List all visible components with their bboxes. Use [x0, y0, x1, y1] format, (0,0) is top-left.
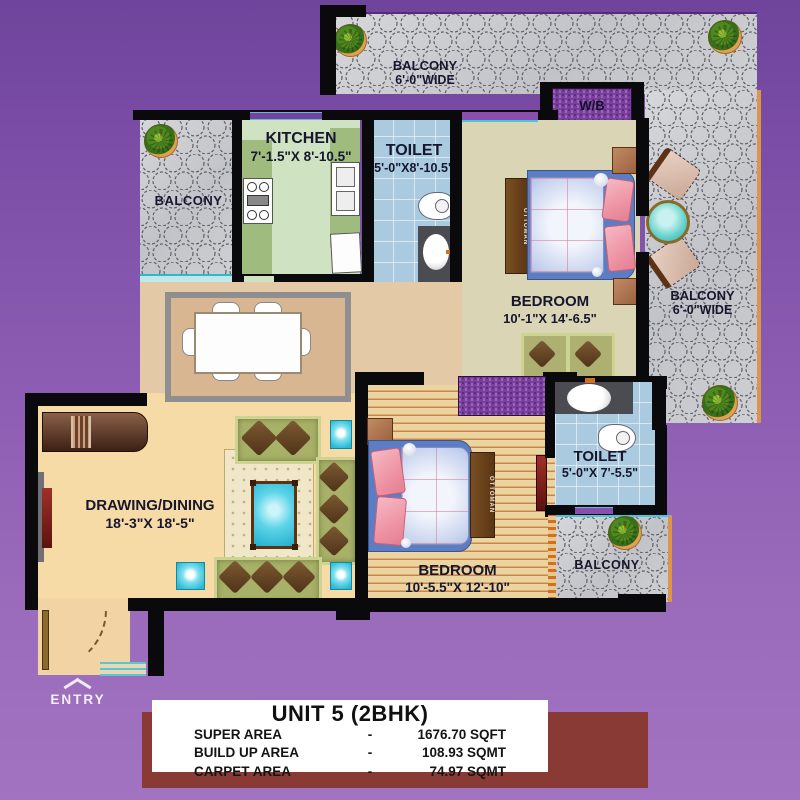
balcony-kitchen-label: BALCONY: [146, 193, 231, 208]
info-row-buildup-area: BUILD UP AREA-108.93 SQMT: [152, 744, 548, 762]
toilet2-label: TOILET 5'-0"X 7'-5.5": [552, 448, 648, 480]
kitchen-label: KITCHEN 7'-1.5"X 8'-10.5": [240, 130, 362, 165]
floor-plan: BALCONY 6'-0"WIDE BALCONY 6'-0"WIDE W/B …: [0, 0, 800, 800]
entry-label: ENTRY: [46, 692, 110, 708]
kitchen-sink: [331, 162, 360, 216]
bedroom2-balcony-window: [548, 515, 556, 600]
side-table: [330, 562, 352, 590]
toilet2-door: [536, 455, 547, 511]
sofa-three-seater-right: [316, 457, 358, 565]
plant-bottom-balcony: [608, 516, 642, 550]
side-table: [330, 420, 352, 449]
entry-arrow-icon: [62, 676, 92, 690]
plant-top-right: [708, 20, 742, 54]
dining-table: [194, 312, 302, 374]
plant-kitchen-balcony: [144, 124, 178, 158]
kitchen-fridge: [330, 232, 362, 274]
balcony-top-label: BALCONY 6'-0"WIDE: [360, 58, 490, 88]
balcony-bottom-label: BALCONY: [562, 558, 652, 573]
bedroom1-window: [462, 112, 538, 122]
bed2: [368, 440, 472, 552]
tv-unit: [42, 488, 52, 548]
entry-steps: [100, 662, 146, 676]
balcony-round-table: [646, 200, 690, 244]
plant-right-lower: [702, 385, 738, 421]
stove: [243, 178, 273, 224]
coffee-table: [251, 481, 297, 549]
info-row-super-area: SUPER AREA-1676.70 SQFT: [152, 726, 548, 744]
toilet1-label: TOILET 5'-0"X8'-10.5": [368, 142, 460, 176]
toilet1-wc: [418, 192, 454, 220]
bed2-pillow: [370, 447, 406, 497]
drawing-label: DRAWING/DINING 18'-3"X 18'-5": [60, 497, 240, 531]
bedroom2-label: BEDROOM 10'-5.5"X 12'-10": [390, 562, 525, 596]
bed2-mattress: [401, 447, 469, 545]
bedroom1-label: BEDROOM 10'-1"X 14'-6.5": [485, 293, 615, 326]
bed1: [527, 170, 635, 280]
wb-label: W/B: [553, 98, 631, 113]
balcony-right-label: BALCONY 6'-0"WIDE: [655, 288, 750, 318]
unit-title: UNIT 5 (2BHK): [152, 702, 548, 726]
sofa-two-seater: [235, 416, 321, 464]
side-table: [176, 562, 205, 590]
toilet2-vanity: [555, 382, 633, 414]
bed2-ottoman: OTTOMAN: [470, 452, 495, 538]
info-row-carpet-area: CARPET AREA-74.97 SQMT: [152, 763, 548, 781]
bedroom2-wardrobe: [458, 376, 546, 416]
plant-top-left: [334, 24, 367, 57]
bed1-mattress: [530, 177, 604, 273]
bed1-pillow: [604, 224, 637, 273]
ottoman1-label: OTTOMAN: [506, 187, 528, 267]
ottoman2-label: OTTOMAN: [471, 459, 494, 531]
console-table: [42, 412, 148, 452]
bed1-ottoman: OTTOMAN: [505, 178, 529, 274]
unit-info-box: UNIT 5 (2BHK) SUPER AREA-1676.70 SQFT BU…: [152, 700, 548, 772]
